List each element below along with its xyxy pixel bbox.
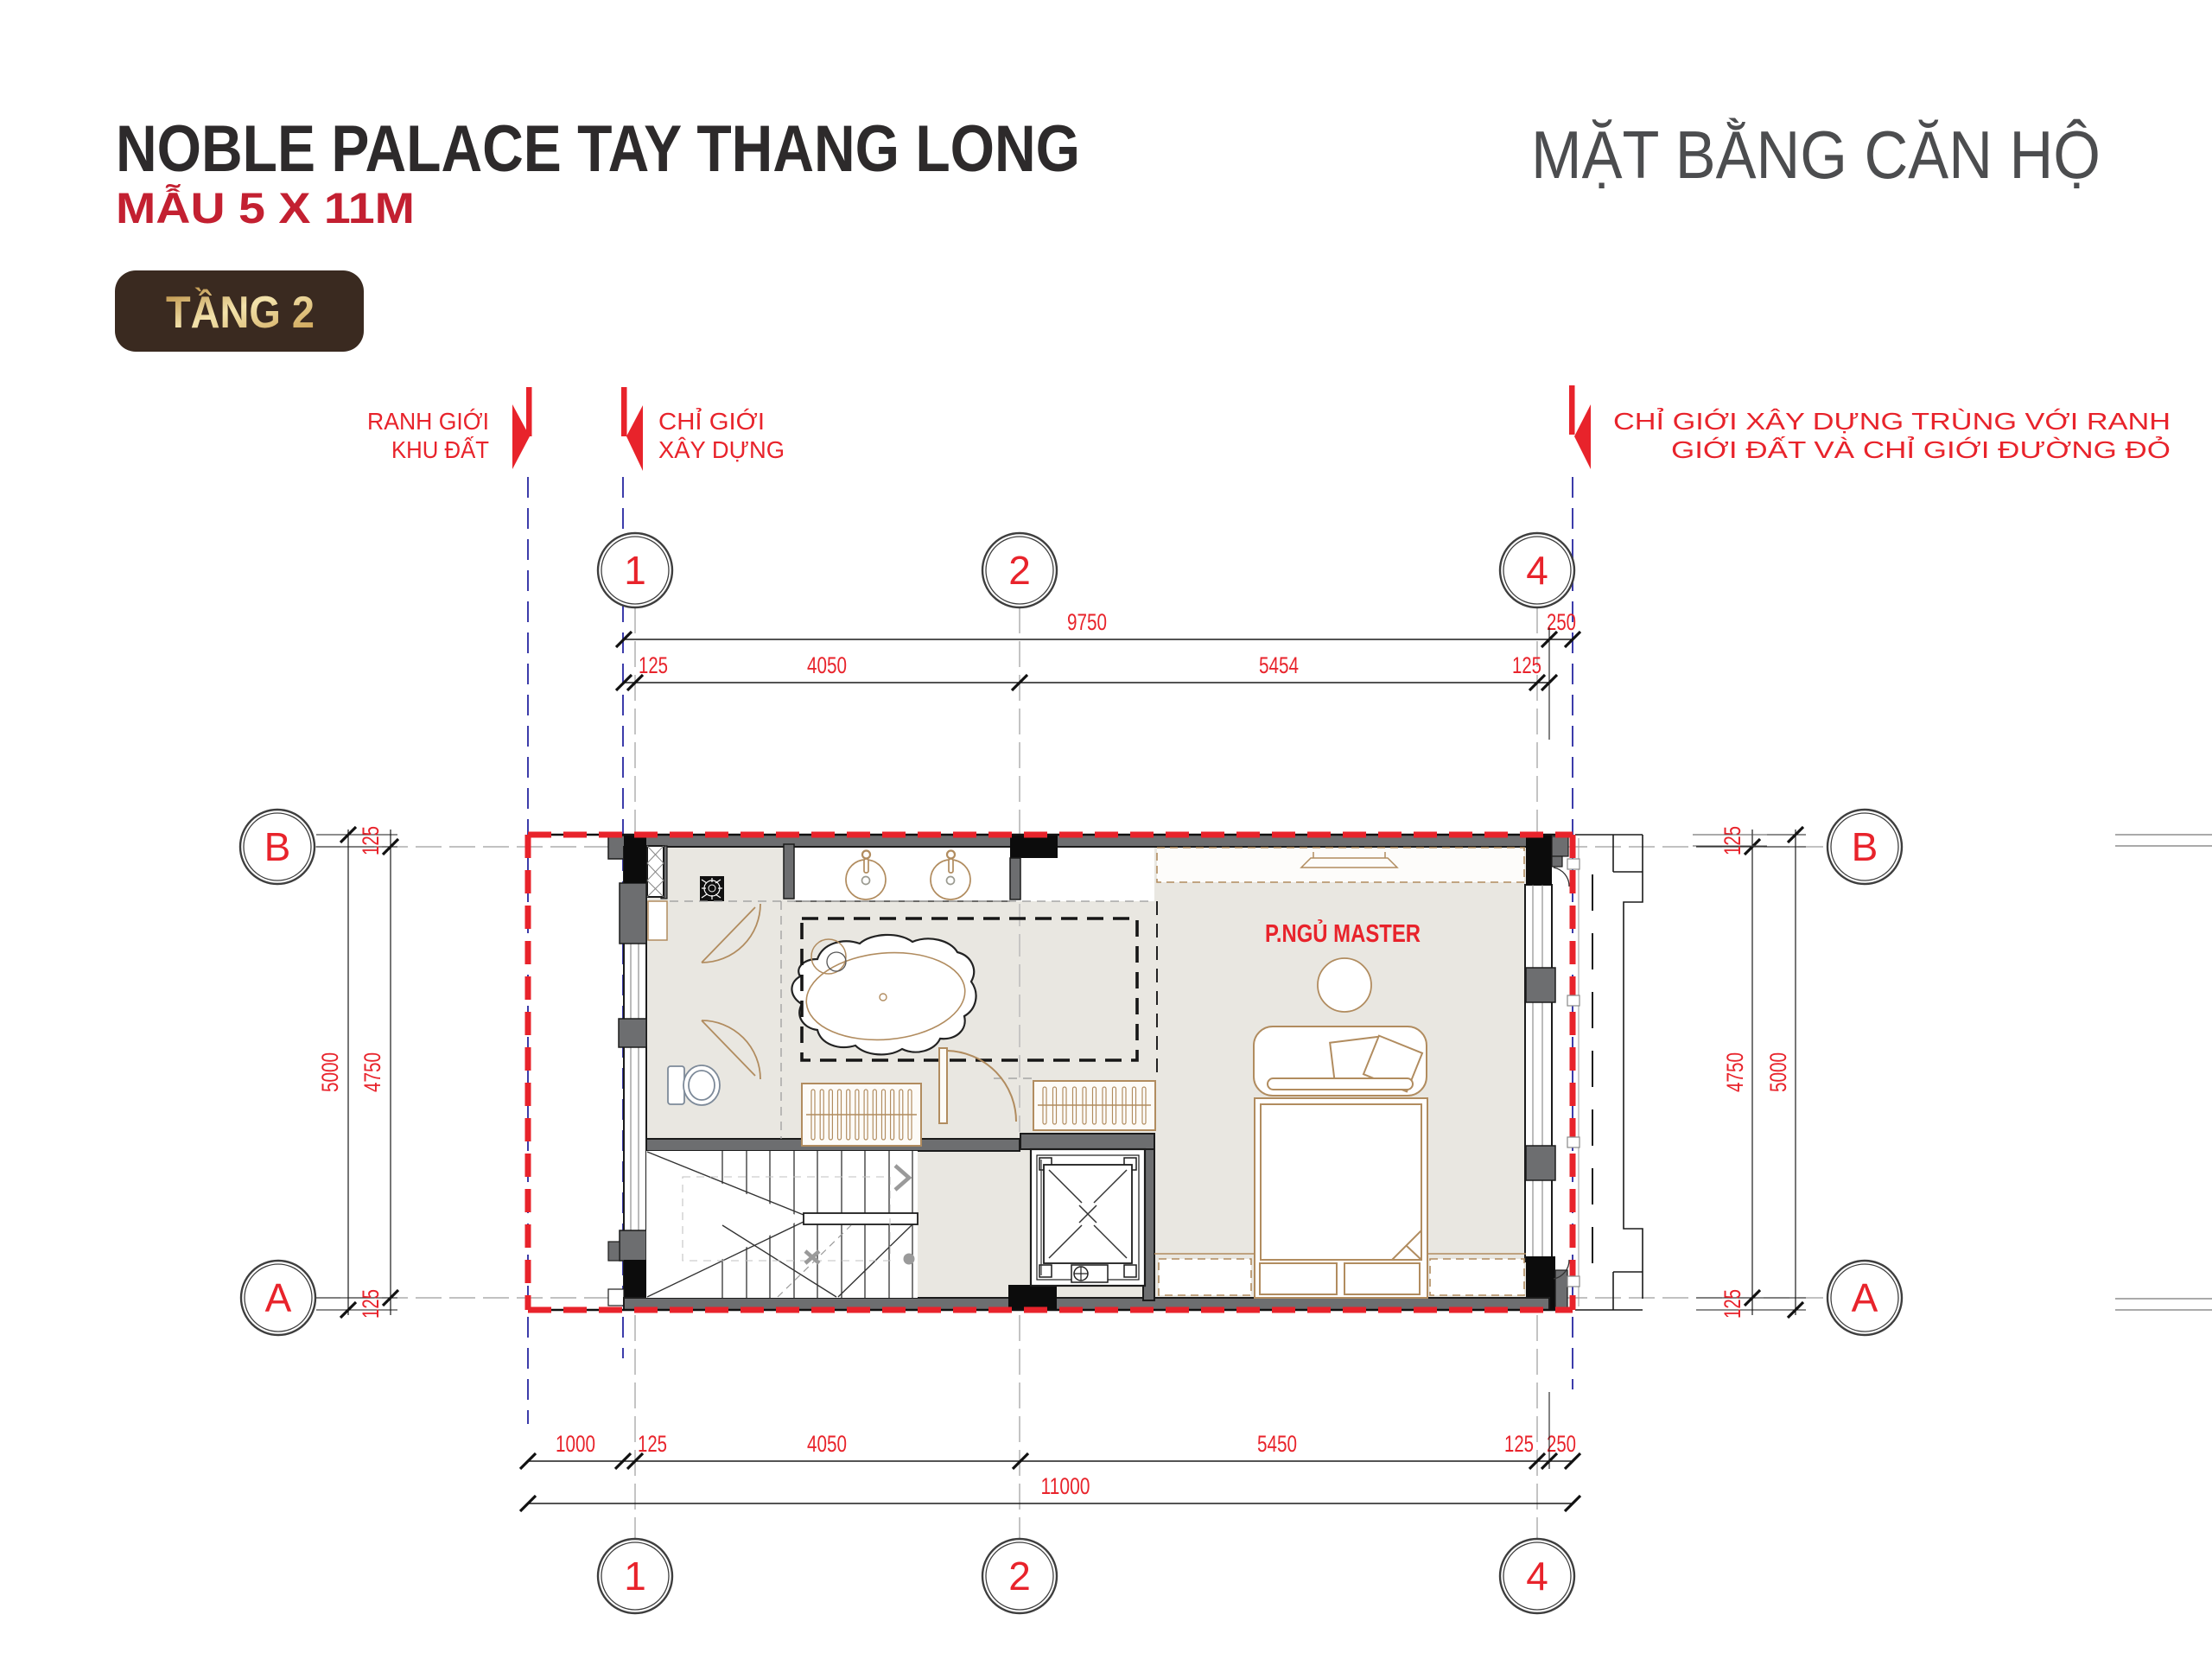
- svg-text:5000: 5000: [317, 1052, 343, 1092]
- svg-text:RANH GIỚI: RANH GIỚI: [367, 408, 489, 435]
- svg-text:125: 125: [639, 652, 668, 678]
- svg-text:125: 125: [1504, 1431, 1534, 1457]
- svg-text:B: B: [1852, 824, 1878, 869]
- svg-text:GIỚI ĐẤT VÀ CHỈ GIỚI ĐƯỜNG ĐỎ: GIỚI ĐẤT VÀ CHỈ GIỚI ĐƯỜNG ĐỎ: [1671, 435, 2171, 463]
- svg-text:4750: 4750: [1722, 1052, 1748, 1092]
- svg-text:B: B: [264, 824, 291, 869]
- svg-text:9750: 9750: [1067, 609, 1107, 635]
- svg-text:5000: 5000: [1765, 1052, 1791, 1092]
- svg-text:2: 2: [1008, 1554, 1031, 1599]
- svg-text:A: A: [265, 1275, 292, 1320]
- svg-text:5454: 5454: [1259, 652, 1299, 678]
- svg-text:2: 2: [1008, 548, 1031, 593]
- svg-text:TẦNG 2: TẦNG 2: [166, 287, 315, 338]
- svg-text:125: 125: [1719, 826, 1745, 855]
- svg-text:125: 125: [1719, 1289, 1745, 1319]
- svg-text:1: 1: [624, 1554, 646, 1599]
- svg-text:4: 4: [1526, 548, 1548, 593]
- svg-text:4050: 4050: [807, 1431, 847, 1457]
- svg-text:A: A: [1852, 1275, 1878, 1320]
- svg-text:CHỈ GIỚI: CHỈ GIỚI: [658, 407, 765, 435]
- svg-text:125: 125: [638, 1431, 667, 1457]
- svg-text:XÂY DỰNG: XÂY DỰNG: [658, 436, 785, 463]
- svg-text:11000: 11000: [1041, 1473, 1090, 1499]
- svg-text:P.NGỦ MASTER: P.NGỦ MASTER: [1265, 918, 1421, 948]
- svg-text:KHU ĐẤT: KHU ĐẤT: [391, 436, 489, 463]
- svg-text:125: 125: [1512, 652, 1541, 678]
- svg-text:4050: 4050: [807, 652, 847, 678]
- svg-text:MẪU 5 X 11M: MẪU 5 X 11M: [116, 184, 415, 232]
- svg-text:MẶT BẰNG CĂN HỘ: MẶT BẰNG CĂN HỘ: [1531, 117, 2101, 193]
- svg-text:1000: 1000: [556, 1431, 595, 1457]
- svg-text:4750: 4750: [359, 1052, 385, 1092]
- svg-text:250: 250: [1547, 609, 1576, 635]
- svg-text:4: 4: [1526, 1554, 1548, 1599]
- svg-text:CHỈ GIỚI XÂY DỰNG TRÙNG VỚI RA: CHỈ GIỚI XÂY DỰNG TRÙNG VỚI RANH: [1613, 407, 2171, 435]
- svg-text:NOBLE PALACE TAY THANG LONG: NOBLE PALACE TAY THANG LONG: [116, 112, 1080, 186]
- svg-text:1: 1: [624, 548, 646, 593]
- svg-text:125: 125: [358, 1289, 384, 1319]
- svg-text:250: 250: [1547, 1431, 1576, 1457]
- svg-text:5450: 5450: [1257, 1431, 1297, 1457]
- svg-text:125: 125: [358, 826, 384, 855]
